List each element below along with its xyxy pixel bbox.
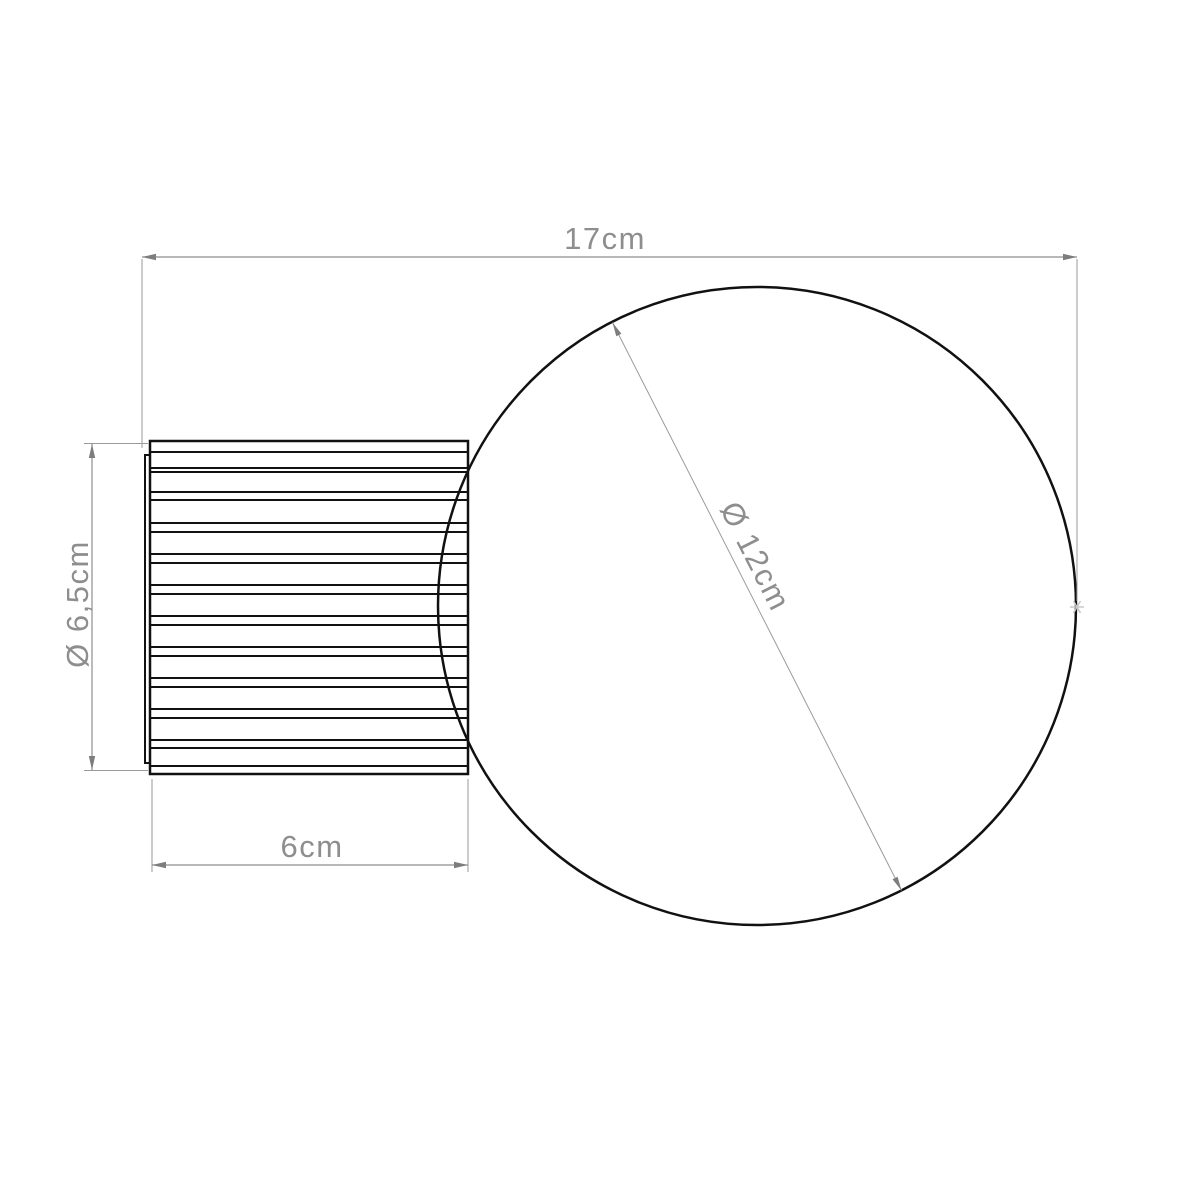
label-overall-width: 17cm — [564, 221, 646, 256]
cylinder-body — [150, 441, 468, 774]
dimension-base-depth: 6cm — [152, 779, 468, 872]
cylinder-ribs — [151, 452, 467, 766]
arrow-up-icon — [89, 444, 95, 458]
dimension-overall-width: 17cm — [142, 221, 1077, 601]
arrow-right-icon — [454, 862, 468, 868]
lamp-dimension-drawing: 17cm Ø 12cm Ø 6,5cm 6cm — [0, 0, 1200, 1200]
arrow-down-right-icon — [893, 877, 902, 891]
label-sphere-diameter: Ø 12cm — [713, 496, 798, 617]
label-base-depth: 6cm — [280, 829, 343, 864]
arrow-left-icon — [142, 254, 156, 260]
arrow-right-icon — [1063, 254, 1077, 260]
label-base-diameter: Ø 6,5cm — [60, 540, 95, 668]
dimension-line-12cm — [613, 323, 902, 891]
cylinder-base — [145, 441, 468, 774]
dimension-sphere-diameter: Ø 12cm — [613, 323, 902, 891]
arrow-down-icon — [89, 756, 95, 770]
arrow-up-left-icon — [613, 323, 622, 337]
arrow-left-icon — [152, 862, 166, 868]
technical-drawing-canvas: 17cm Ø 12cm Ø 6,5cm 6cm — [0, 0, 1200, 1200]
dimension-base-diameter: Ø 6,5cm — [60, 444, 148, 771]
